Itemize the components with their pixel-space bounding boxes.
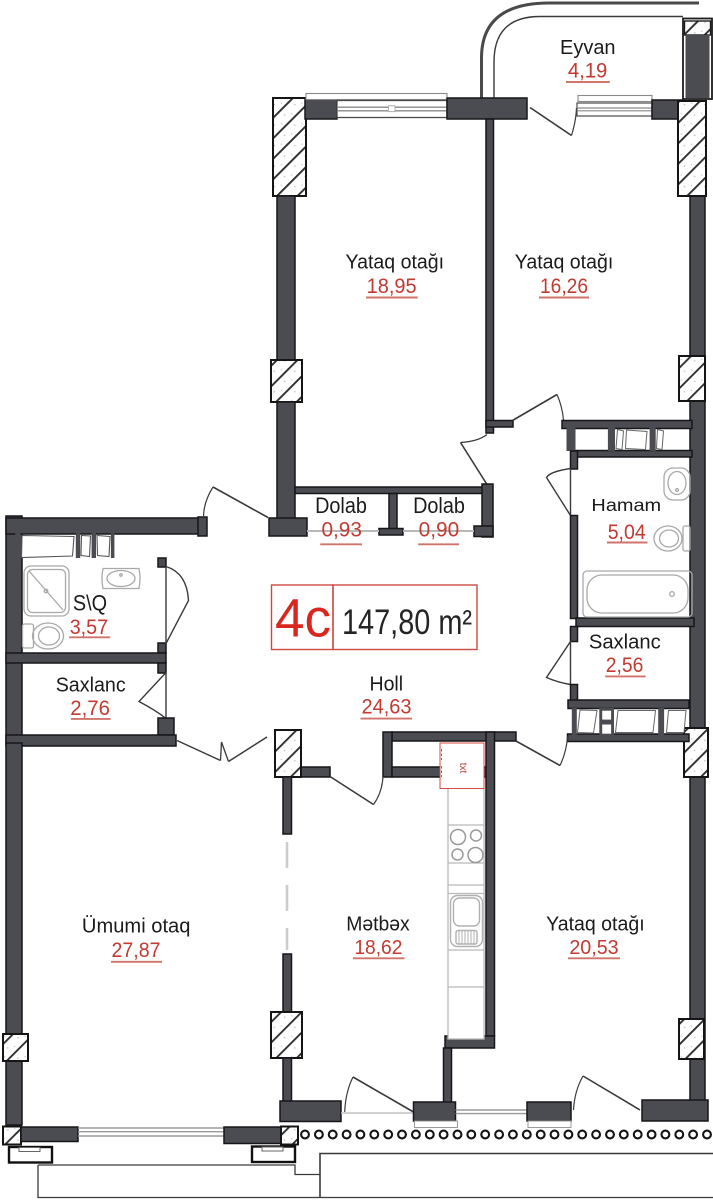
- svg-text:20,53: 20,53: [569, 936, 618, 959]
- svg-text:S\Q: S\Q: [73, 591, 107, 616]
- svg-text:3,57: 3,57: [70, 616, 108, 639]
- svg-text:24,63: 24,63: [362, 696, 412, 719]
- svg-text:Dolab: Dolab: [413, 493, 465, 518]
- svg-text:Dolab: Dolab: [315, 493, 367, 518]
- svg-text:5,04: 5,04: [608, 521, 646, 544]
- svg-text:Hamam: Hamam: [591, 495, 661, 515]
- svg-text:2,56: 2,56: [606, 654, 644, 677]
- svg-text:Ümumi otaq: Ümumi otaq: [82, 916, 191, 938]
- svg-text:Holl: Holl: [370, 674, 404, 696]
- svg-text:0,93: 0,93: [321, 518, 362, 541]
- svg-text:Saxlanc: Saxlanc: [56, 675, 126, 697]
- svg-text:18,62: 18,62: [354, 936, 402, 959]
- svg-text:Yataq otağı: Yataq otağı: [515, 251, 614, 273]
- svg-text:4c: 4c: [275, 589, 331, 649]
- svg-text:18,95: 18,95: [367, 275, 417, 298]
- svg-text:Saxlanc: Saxlanc: [589, 631, 661, 653]
- svg-text:Yataq otağı: Yataq otağı: [546, 913, 645, 935]
- svg-text:2,76: 2,76: [70, 697, 110, 720]
- svg-text:4,19: 4,19: [568, 60, 608, 83]
- svg-text:147,80 m²: 147,80 m²: [342, 603, 472, 642]
- svg-text:Mətbəx: Mətbəx: [346, 913, 410, 935]
- svg-text:Yataq otağı: Yataq otağı: [346, 251, 445, 273]
- svg-text:27,87: 27,87: [112, 939, 161, 962]
- svg-text:0,90: 0,90: [419, 518, 460, 541]
- svg-text:16,26: 16,26: [540, 275, 588, 298]
- svg-text:Eyvan: Eyvan: [560, 37, 616, 59]
- svg-text:txt: txt: [457, 763, 468, 774]
